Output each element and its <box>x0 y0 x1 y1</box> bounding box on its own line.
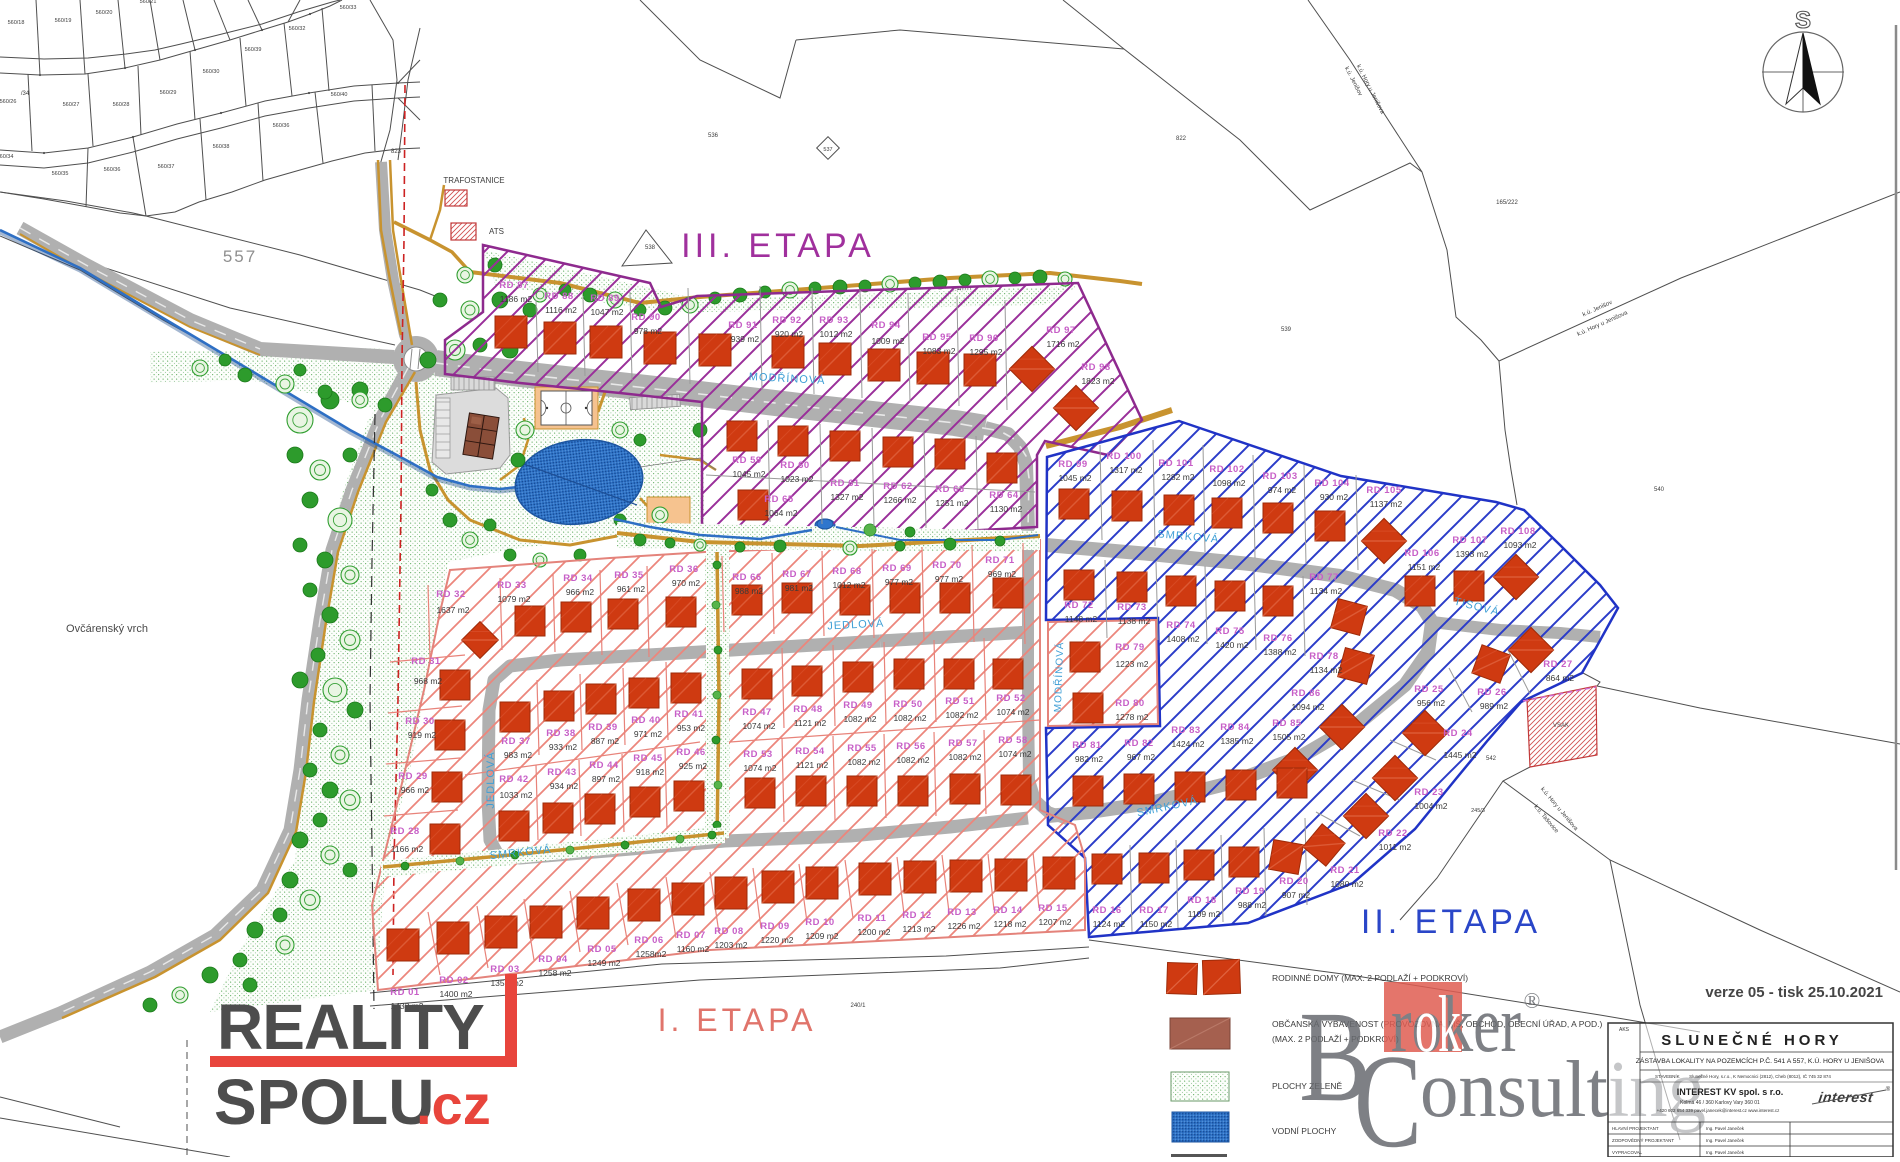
svg-text:1023 m2: 1023 m2 <box>780 474 813 484</box>
svg-text:RD 09: RD 09 <box>760 921 789 932</box>
svg-text:RD 70: RD 70 <box>932 560 961 571</box>
svg-text:RD 98: RD 98 <box>1081 362 1110 373</box>
svg-text:1258 m2: 1258 m2 <box>538 968 571 978</box>
svg-text:978 m2: 978 m2 <box>634 326 663 336</box>
svg-text:1295 m2: 1295 m2 <box>969 347 1002 357</box>
svg-text:1388 m2: 1388 m2 <box>1263 647 1296 657</box>
svg-text:1093 m2: 1093 m2 <box>1503 540 1536 550</box>
svg-text:1009 m2: 1009 m2 <box>871 336 904 346</box>
svg-text:1138 m2: 1138 m2 <box>1118 616 1151 626</box>
svg-text:RD 02: RD 02 <box>439 975 468 986</box>
svg-text:939 m2: 939 m2 <box>731 334 760 344</box>
svg-text:1393 m2: 1393 m2 <box>1455 549 1488 559</box>
svg-text:1258m2: 1258m2 <box>636 949 667 959</box>
svg-text:1278 m2: 1278 m2 <box>1115 712 1148 722</box>
svg-text:RD 24: RD 24 <box>1443 728 1473 739</box>
svg-text:1082 m2: 1082 m2 <box>843 714 876 724</box>
svg-text:1134 m2: 1134 m2 <box>1310 665 1343 675</box>
svg-text:RD 68: RD 68 <box>832 566 861 577</box>
svg-text:1207 m2: 1207 m2 <box>1038 917 1071 927</box>
svg-text:953 m2: 953 m2 <box>677 723 706 733</box>
svg-text:Ing. Pavel Janeček: Ing. Pavel Janeček <box>1706 1138 1745 1143</box>
svg-text:RD 26: RD 26 <box>1477 687 1506 698</box>
svg-text:1408 m2: 1408 m2 <box>1166 634 1199 644</box>
svg-text:RD 84: RD 84 <box>1220 722 1250 733</box>
svg-text:RD 05: RD 05 <box>587 944 617 955</box>
svg-text:1213 m2: 1213 m2 <box>902 924 935 934</box>
svg-text:RD 11: RD 11 <box>858 913 887 924</box>
svg-text:RD 97: RD 97 <box>1046 325 1075 336</box>
svg-text:RD 59: RD 59 <box>732 455 761 466</box>
svg-text:560/40: 560/40 <box>331 92 348 98</box>
svg-text:II. ETAPA: II. ETAPA <box>1361 903 1541 941</box>
svg-text:RD 99: RD 99 <box>1058 459 1087 470</box>
svg-text:542: 542 <box>1486 756 1497 762</box>
svg-text:560/36: 560/36 <box>273 123 290 129</box>
svg-text:RD 29: RD 29 <box>398 771 427 782</box>
svg-text:956 m2: 956 m2 <box>1417 698 1446 708</box>
svg-text:RD 12: RD 12 <box>902 910 931 921</box>
svg-text:1080 m2: 1080 m2 <box>1330 879 1363 889</box>
svg-text:1074 m2: 1074 m2 <box>742 721 775 731</box>
svg-text:RD 34: RD 34 <box>563 573 593 584</box>
svg-text:1148 m2: 1148 m2 <box>1065 614 1098 624</box>
svg-text:822: 822 <box>1176 136 1187 142</box>
svg-text:RD 62: RD 62 <box>883 481 912 492</box>
svg-text:RD 75: RD 75 <box>1215 626 1245 637</box>
svg-text:RD 74: RD 74 <box>1166 620 1196 631</box>
svg-text:RD 76: RD 76 <box>1263 633 1292 644</box>
svg-text:1266 m2: 1266 m2 <box>883 495 916 505</box>
svg-text:RD 35: RD 35 <box>614 570 644 581</box>
svg-text:1082 m2: 1082 m2 <box>893 713 926 723</box>
svg-text:RD 60: RD 60 <box>780 460 809 471</box>
svg-text:560/34: 560/34 <box>0 154 13 160</box>
svg-text:Ing. Pavel Janeček: Ing. Pavel Janeček <box>1706 1150 1745 1155</box>
svg-text:1045 m2: 1045 m2 <box>1058 473 1091 483</box>
svg-text:1200 m2: 1200 m2 <box>857 927 890 937</box>
svg-text:RD 107: RD 107 <box>1452 535 1487 546</box>
svg-text:1166 m2: 1166 m2 <box>391 844 424 854</box>
svg-text:/34: /34 <box>21 91 30 97</box>
svg-text:®: ® <box>1524 988 1541 1013</box>
svg-text:1150 m2: 1150 m2 <box>1140 919 1173 929</box>
svg-text:RD 22: RD 22 <box>1378 828 1407 839</box>
svg-text:RD 106: RD 106 <box>1404 548 1439 559</box>
svg-text:RD 87: RD 87 <box>499 280 528 291</box>
svg-text:1505 m2: 1505 m2 <box>1272 732 1305 742</box>
svg-text:1327 m2: 1327 m2 <box>830 492 863 502</box>
svg-text:864 m2: 864 m2 <box>1546 673 1575 683</box>
svg-text:RD 77: RD 77 <box>1309 572 1338 583</box>
svg-text:RD 25: RD 25 <box>1414 684 1444 695</box>
svg-text:RD 53: RD 53 <box>743 749 772 760</box>
svg-text:1109 m2: 1109 m2 <box>1188 909 1221 919</box>
svg-text:961 m2: 961 m2 <box>617 584 646 594</box>
svg-text:1424 m2: 1424 m2 <box>1171 739 1204 749</box>
svg-text:RD 38: RD 38 <box>546 728 575 739</box>
svg-text:RD 69: RD 69 <box>882 563 911 574</box>
svg-text:ZÁSTAVBA LOKALITY NA POZEMCÍCH: ZÁSTAVBA LOKALITY NA POZEMCÍCH P.Č. 541 … <box>1636 1056 1885 1065</box>
svg-text:RD 50: RD 50 <box>893 699 922 710</box>
svg-text:RD 17: RD 17 <box>1139 905 1168 916</box>
svg-text:Slunečné Hory, s.r.o., K Nemoc: Slunečné Hory, s.r.o., K Nemocnici (2812… <box>1689 1073 1831 1079</box>
svg-text:539: 539 <box>1281 327 1292 333</box>
svg-text:RD 18: RD 18 <box>1187 895 1216 906</box>
svg-text:1249 m2: 1249 m2 <box>587 958 620 968</box>
svg-text:RD 65: RD 65 <box>764 494 794 505</box>
svg-text:907 m2: 907 m2 <box>1282 890 1311 900</box>
svg-text:RD 31: RD 31 <box>411 656 441 667</box>
svg-text:HLAVNÍ PROJEKTANT: HLAVNÍ PROJEKTANT <box>1612 1125 1659 1131</box>
svg-text:966 m2: 966 m2 <box>401 785 430 795</box>
svg-text:RD 67: RD 67 <box>782 569 811 580</box>
svg-text:1203 m2: 1203 m2 <box>714 940 747 950</box>
svg-text:536: 536 <box>708 133 719 139</box>
svg-text:RD 47: RD 47 <box>742 707 771 718</box>
svg-text:1218 m2: 1218 m2 <box>993 919 1026 929</box>
svg-text:RD 100: RD 100 <box>1106 451 1141 462</box>
svg-text:966 m2: 966 m2 <box>566 587 595 597</box>
svg-text:919 m2: 919 m2 <box>408 730 437 740</box>
svg-text:1420 m2: 1420 m2 <box>1215 640 1248 650</box>
svg-text:Kolmá 46 / 360 Karlovy Vary 3: Kolmá 46 / 360 Karlovy Vary 360 01 <box>1680 1100 1760 1106</box>
svg-text:RD 90: RD 90 <box>631 312 660 323</box>
svg-text:537: 537 <box>823 147 832 153</box>
svg-text:AKS: AKS <box>1619 1027 1630 1033</box>
svg-text:RD 103: RD 103 <box>1262 471 1297 482</box>
svg-text:RD 85: RD 85 <box>1272 718 1302 729</box>
svg-text:1012 m2: 1012 m2 <box>819 329 852 339</box>
svg-text:560/20: 560/20 <box>96 10 113 16</box>
svg-text:1282 m2: 1282 m2 <box>1161 472 1194 482</box>
svg-text:III. ETAPA: III. ETAPA <box>681 227 875 265</box>
svg-text:1082 m2: 1082 m2 <box>948 752 981 762</box>
svg-text:967 m2: 967 m2 <box>1127 752 1156 762</box>
svg-text:1083 m2: 1083 m2 <box>922 346 955 356</box>
svg-text:RD 72: RD 72 <box>1064 600 1093 611</box>
svg-text:RD 49: RD 49 <box>843 700 872 711</box>
svg-text:RD 61: RD 61 <box>830 478 860 489</box>
svg-text:RD 92: RD 92 <box>772 315 801 326</box>
svg-text:RD 14: RD 14 <box>993 905 1023 916</box>
svg-text:823: 823 <box>391 149 402 155</box>
svg-text:+420 602 654 339 pavel.janece: +420 602 654 339 pavel.janecek@interest.… <box>1657 1108 1781 1113</box>
svg-text:240/1: 240/1 <box>850 1003 866 1009</box>
svg-text:988 m2: 988 m2 <box>1238 900 1267 910</box>
svg-text:560/33: 560/33 <box>340 5 357 11</box>
svg-text:560/27: 560/27 <box>63 102 80 108</box>
svg-text:verze 05 - tisk 25.10.2021: verze 05 - tisk 25.10.2021 <box>1705 984 1883 1001</box>
svg-text:1082 m2: 1082 m2 <box>896 755 929 765</box>
svg-text:RD 06: RD 06 <box>634 935 663 946</box>
svg-text:RD 56: RD 56 <box>896 741 925 752</box>
svg-text:1004 m2: 1004 m2 <box>1414 801 1447 811</box>
svg-text:560/39: 560/39 <box>245 47 262 53</box>
svg-text:RD 30: RD 30 <box>405 716 434 727</box>
svg-text:RD 13: RD 13 <box>947 907 976 918</box>
svg-text:RD 64: RD 64 <box>989 490 1019 501</box>
svg-text:1012 m2: 1012 m2 <box>832 580 865 590</box>
svg-text:1209 m2: 1209 m2 <box>805 931 838 941</box>
svg-text:925 m2: 925 m2 <box>679 761 708 771</box>
svg-text:RD 36: RD 36 <box>669 564 698 575</box>
svg-text:557: 557 <box>223 247 257 266</box>
svg-text:ZODPOVĚDNÝ PROJEKTANT: ZODPOVĚDNÝ PROJEKTANT <box>1612 1136 1674 1143</box>
svg-text:540: 540 <box>1654 487 1665 493</box>
svg-text:RD 41: RD 41 <box>674 709 704 720</box>
svg-text:983 m2: 983 m2 <box>504 750 533 760</box>
svg-text:989 m2: 989 m2 <box>1480 701 1509 711</box>
svg-text:1116 m2: 1116 m2 <box>545 305 577 315</box>
svg-text:RD 81: RD 81 <box>1072 740 1102 751</box>
svg-text:930 m2: 930 m2 <box>1320 492 1349 502</box>
svg-text:1082 m2: 1082 m2 <box>945 710 978 720</box>
svg-text:560/37: 560/37 <box>158 164 175 170</box>
svg-text:RD 55: RD 55 <box>847 743 877 754</box>
svg-text:RD 63: RD 63 <box>935 484 964 495</box>
svg-text:RD 20: RD 20 <box>1279 876 1308 887</box>
svg-text:RD 10: RD 10 <box>805 917 834 928</box>
svg-text:®: ® <box>1886 1086 1891 1093</box>
svg-text:1220 m2: 1220 m2 <box>760 935 793 945</box>
svg-text:RD 15: RD 15 <box>1038 903 1068 914</box>
svg-text:970 m2: 970 m2 <box>672 578 701 588</box>
svg-text:560/32: 560/32 <box>289 26 306 32</box>
svg-text:RD 04: RD 04 <box>538 954 568 965</box>
svg-text:981 m2: 981 m2 <box>785 583 814 593</box>
svg-text:982 m2: 982 m2 <box>1075 754 1104 764</box>
svg-text:933 m2: 933 m2 <box>549 742 578 752</box>
svg-text:STAVEBNÍK: STAVEBNÍK <box>1655 1073 1680 1079</box>
svg-text:920 m2: 920 m2 <box>775 329 804 339</box>
svg-text:1082 m2: 1082 m2 <box>847 757 880 767</box>
svg-text:1137 m2: 1137 m2 <box>1370 499 1403 509</box>
svg-text:RD 79: RD 79 <box>1115 642 1144 653</box>
svg-text:1045 m2: 1045 m2 <box>732 469 765 479</box>
svg-text:1226 m2: 1226 m2 <box>947 921 980 931</box>
svg-text:RD 78: RD 78 <box>1309 651 1338 662</box>
svg-text:887 m2: 887 m2 <box>591 736 620 746</box>
svg-text:Ing. Pavel Janeček: Ing. Pavel Janeček <box>1706 1126 1745 1131</box>
svg-text:165/222: 165/222 <box>1496 200 1518 206</box>
svg-text:RD 66: RD 66 <box>732 572 761 583</box>
svg-text:VSAK: VSAK <box>1553 723 1569 729</box>
svg-text:1079 m2: 1079 m2 <box>497 594 530 604</box>
svg-text:934 m2: 934 m2 <box>550 781 579 791</box>
svg-text:560/19: 560/19 <box>55 18 72 24</box>
svg-text:RD 46: RD 46 <box>676 747 705 758</box>
svg-text:RD 07: RD 07 <box>676 930 705 941</box>
svg-text:RD 82: RD 82 <box>1124 738 1153 749</box>
svg-text:INTEREST KV spol. s r.o.: INTEREST KV spol. s r.o. <box>1677 1087 1784 1097</box>
svg-text:RD 58: RD 58 <box>998 735 1027 746</box>
svg-text:C: C <box>1354 1027 1422 1157</box>
svg-text:RD 101: RD 101 <box>1158 458 1193 469</box>
svg-text:RD 44: RD 44 <box>589 760 619 771</box>
svg-text:RD 03: RD 03 <box>490 964 519 975</box>
svg-text:RD 71: RD 71 <box>985 555 1015 566</box>
svg-text:RD 40: RD 40 <box>631 715 660 726</box>
svg-text:560/28: 560/28 <box>113 102 130 108</box>
svg-text:1094 m2: 1094 m2 <box>1291 702 1324 712</box>
svg-text:RD 86: RD 86 <box>1291 688 1320 699</box>
svg-text:969 m2: 969 m2 <box>988 569 1017 579</box>
svg-text:RD 48: RD 48 <box>793 704 822 715</box>
svg-text:1823 m2: 1823 m2 <box>1081 376 1114 386</box>
svg-text:RD 89: RD 89 <box>590 293 619 304</box>
svg-text:JEDLOVÁ: JEDLOVÁ <box>484 751 497 808</box>
svg-text:1121 m2: 1121 m2 <box>796 760 829 770</box>
svg-text:SLUNEČNÉ HORY: SLUNEČNÉ HORY <box>1661 1031 1842 1049</box>
svg-text:REALITY: REALITY <box>217 991 484 1063</box>
svg-text:560/30: 560/30 <box>203 69 220 75</box>
svg-text:988 m2: 988 m2 <box>735 586 764 596</box>
svg-text:RD 39: RD 39 <box>588 722 617 733</box>
svg-text:RD 57: RD 57 <box>948 738 977 749</box>
svg-text:560/29: 560/29 <box>160 90 177 96</box>
svg-text:ATS: ATS <box>489 227 504 236</box>
svg-text:1445 m2: 1445 m2 <box>1443 750 1476 760</box>
svg-text:538: 538 <box>645 245 656 251</box>
svg-text:RD 95: RD 95 <box>922 332 952 343</box>
svg-text:1151 m2: 1151 m2 <box>1408 562 1441 572</box>
svg-text:245/3: 245/3 <box>1471 808 1485 814</box>
svg-text:968 m2: 968 m2 <box>414 676 443 686</box>
svg-text:1130 m2: 1130 m2 <box>990 504 1023 514</box>
svg-text:RD 08: RD 08 <box>714 926 743 937</box>
svg-text:1385 m2: 1385 m2 <box>1220 736 1253 746</box>
svg-text:RD 102: RD 102 <box>1209 464 1244 475</box>
svg-text:RD 108: RD 108 <box>1500 526 1535 537</box>
svg-text:Ovčárenský vrch: Ovčárenský vrch <box>66 623 148 635</box>
svg-text:RD 23: RD 23 <box>1414 787 1443 798</box>
svg-text:RD 32: RD 32 <box>436 589 465 600</box>
svg-text:1251 m2: 1251 m2 <box>935 498 968 508</box>
svg-text:RD 104: RD 104 <box>1314 478 1349 489</box>
svg-text:S: S <box>1795 7 1811 34</box>
svg-text:1124 m2: 1124 m2 <box>1093 919 1126 929</box>
svg-text:560/36: 560/36 <box>104 167 121 173</box>
svg-text:897 m2: 897 m2 <box>592 774 621 784</box>
svg-text:RD 51: RD 51 <box>945 696 975 707</box>
svg-text:1033 m2: 1033 m2 <box>499 790 532 800</box>
svg-text:RD 43: RD 43 <box>547 767 576 778</box>
svg-text:.cz: .cz <box>416 1073 491 1136</box>
svg-text:RD 28: RD 28 <box>390 826 419 837</box>
svg-text:I. ETAPA: I. ETAPA <box>658 1002 817 1038</box>
svg-text:1074 m2: 1074 m2 <box>998 749 1031 759</box>
svg-text:RD 27: RD 27 <box>1543 659 1572 670</box>
svg-text:RD 73: RD 73 <box>1117 602 1146 613</box>
svg-text:1160 m2: 1160 m2 <box>677 944 710 954</box>
svg-text:RD 52: RD 52 <box>996 693 1025 704</box>
svg-text:1011 m2: 1011 m2 <box>1379 842 1412 852</box>
svg-text:RD 16: RD 16 <box>1092 905 1121 916</box>
svg-text:1186 m2: 1186 m2 <box>500 294 533 304</box>
svg-text:560/21: 560/21 <box>140 0 157 5</box>
svg-text:1074 m2: 1074 m2 <box>743 763 776 773</box>
svg-text:1134 m2: 1134 m2 <box>1310 586 1343 596</box>
svg-text:RD 80: RD 80 <box>1115 698 1144 709</box>
svg-text:RD 19: RD 19 <box>1235 886 1264 897</box>
svg-text:560/26: 560/26 <box>0 99 16 105</box>
svg-text:977 m2: 977 m2 <box>935 574 964 584</box>
svg-text:TRAFOSTANICE: TRAFOSTANICE <box>443 176 504 185</box>
svg-text:RD 21: RD 21 <box>1330 865 1360 876</box>
svg-text:918 m2: 918 m2 <box>636 767 665 777</box>
svg-text:560/35: 560/35 <box>52 171 69 177</box>
svg-text:560/38: 560/38 <box>213 144 230 150</box>
svg-text:RD 37: RD 37 <box>501 736 530 747</box>
svg-text:1047 m2: 1047 m2 <box>590 307 623 317</box>
svg-text:RD 83: RD 83 <box>1171 725 1200 736</box>
svg-text:RD 96: RD 96 <box>969 333 998 344</box>
svg-text:VYPRACOVAL: VYPRACOVAL <box>1612 1150 1643 1155</box>
svg-text:RD 94: RD 94 <box>871 320 901 331</box>
svg-text:RD 33: RD 33 <box>497 580 526 591</box>
svg-text:SPOLU: SPOLU <box>214 1066 434 1138</box>
svg-text:1074 m2: 1074 m2 <box>996 707 1029 717</box>
svg-text:RD 45: RD 45 <box>633 753 663 764</box>
svg-text:1716 m2: 1716 m2 <box>1046 339 1079 349</box>
svg-text:RD 105: RD 105 <box>1366 485 1401 496</box>
svg-text:RD 42: RD 42 <box>499 774 528 785</box>
svg-text:1317 m2: 1317 m2 <box>1109 465 1142 475</box>
svg-text:974 m2: 974 m2 <box>1268 485 1297 495</box>
svg-text:RD 88: RD 88 <box>544 291 573 302</box>
svg-text:RD 54: RD 54 <box>795 746 825 757</box>
svg-text:RD 91: RD 91 <box>728 320 758 331</box>
svg-text:977 m2: 977 m2 <box>885 577 914 587</box>
svg-text:1098 m2: 1098 m2 <box>1212 478 1245 488</box>
svg-text:1121 m2: 1121 m2 <box>794 718 827 728</box>
svg-text:971 m2: 971 m2 <box>634 729 663 739</box>
svg-text:1064 m2: 1064 m2 <box>764 508 797 518</box>
svg-text:1637 m2: 1637 m2 <box>436 605 469 615</box>
svg-text:1223 m2: 1223 m2 <box>1115 659 1148 669</box>
svg-text:RD 93: RD 93 <box>819 315 848 326</box>
svg-text:560/18: 560/18 <box>8 20 25 26</box>
